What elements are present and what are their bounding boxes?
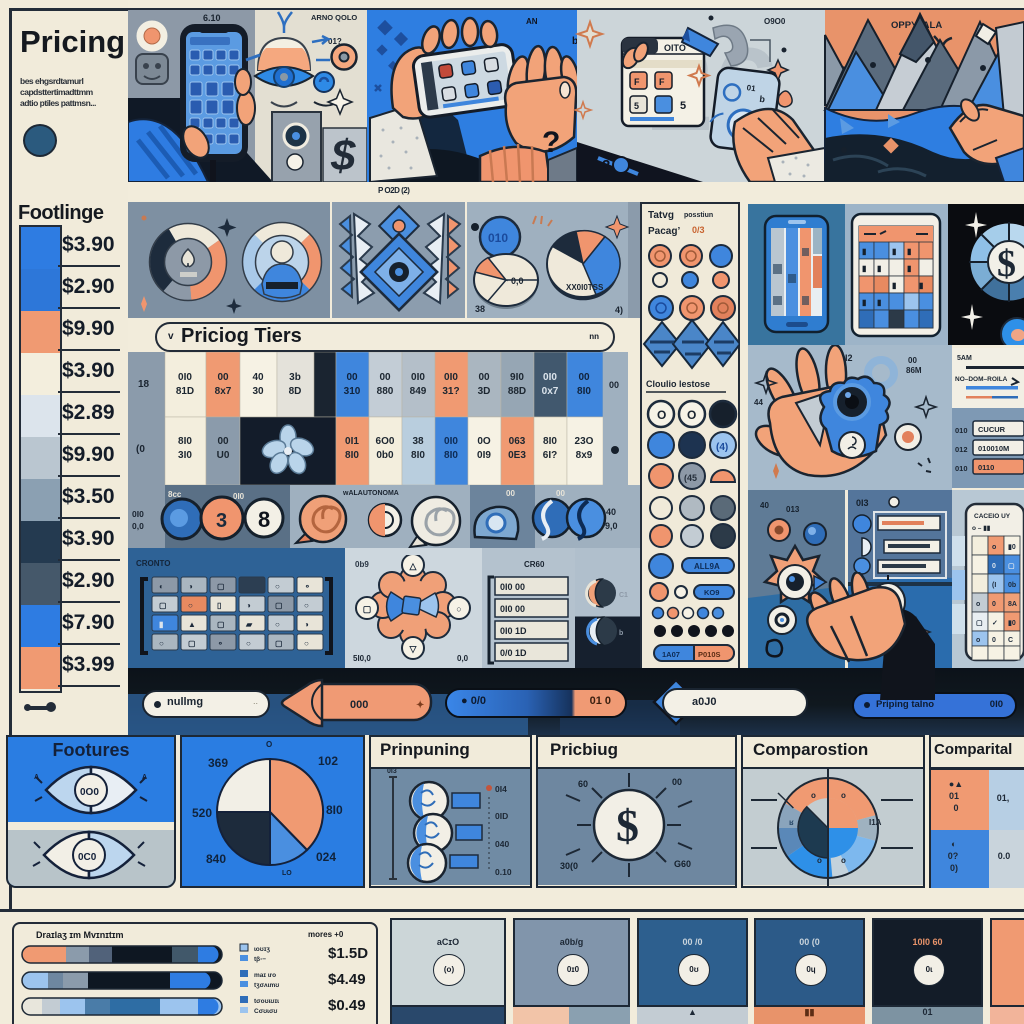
svg-text:▢: ▢ — [976, 620, 983, 627]
svg-text:6I?: 6I? — [543, 450, 557, 461]
svg-text:▯: ▯ — [217, 601, 221, 610]
svg-text:▲: ▲ — [188, 620, 196, 629]
svg-text:0?: 0? — [948, 851, 959, 861]
svg-text:310: 310 — [344, 386, 361, 397]
svg-text:6.10: 6.10 — [203, 13, 221, 23]
svg-text:U0: U0 — [217, 450, 230, 461]
svg-text:$4.49: $4.49 — [328, 971, 366, 988]
svg-text:O: O — [266, 740, 272, 749]
svg-text:◑: ◑ — [188, 582, 193, 591]
svg-text:▢: ▢ — [159, 601, 167, 610]
svg-text:▮: ▮ — [907, 247, 911, 256]
svg-text:▮: ▮ — [862, 298, 866, 307]
svg-text:3D: 3D — [478, 386, 491, 397]
svg-text:0,0: 0,0 — [132, 521, 144, 531]
svg-text:$1.5D: $1.5D — [328, 945, 368, 962]
svg-text:C: C — [1008, 637, 1013, 644]
svg-text:CACEIO UY: CACEIO UY — [974, 513, 1011, 520]
svg-text:840: 840 — [206, 852, 226, 866]
svg-text:0I3: 0I3 — [387, 768, 397, 775]
svg-text:$0.49: $0.49 — [328, 997, 366, 1014]
svg-text:880: 880 — [377, 386, 394, 397]
svg-text:▮0: ▮0 — [1008, 544, 1016, 551]
svg-text:✓: ✓ — [992, 620, 998, 627]
svg-text:6O0: 6O0 — [376, 436, 395, 447]
svg-text:O9O0: O9O0 — [764, 17, 786, 26]
svg-text:00: 00 — [609, 380, 619, 390]
svg-text:8I0: 8I0 — [178, 436, 192, 447]
svg-text:F: F — [634, 77, 640, 87]
svg-text:00: 00 — [556, 489, 565, 498]
svg-text:○: ○ — [275, 620, 280, 629]
svg-text:00: 00 — [578, 372, 590, 383]
svg-text:0I0: 0I0 — [132, 509, 144, 519]
svg-text:18: 18 — [138, 379, 150, 390]
svg-text:0I9: 0I9 — [477, 450, 491, 461]
svg-text:0x7: 0x7 — [542, 386, 559, 397]
svg-text:60: 60 — [578, 779, 588, 789]
svg-text:9I0: 9I0 — [510, 372, 524, 383]
svg-text:AN: AN — [526, 17, 538, 26]
svg-text:8x9: 8x9 — [576, 450, 593, 461]
svg-text:0I0 00: 0I0 00 — [500, 582, 525, 592]
svg-text:LO: LO — [282, 870, 292, 877]
svg-text:010: 010 — [955, 464, 968, 473]
svg-text:⚬: ⚬ — [217, 639, 224, 648]
svg-text:0.0: 0.0 — [998, 851, 1011, 861]
svg-text:00: 00 — [908, 356, 917, 365]
svg-text:0O: 0O — [477, 436, 491, 447]
svg-text:F: F — [659, 77, 665, 87]
svg-text:0I0: 0I0 — [178, 372, 192, 383]
svg-text:tσoʊɩʊɪɩ: tσoʊɩʊɪɩ — [254, 998, 279, 1005]
svg-text:A: A — [142, 774, 147, 781]
svg-text:▢: ▢ — [217, 620, 225, 629]
svg-text:○: ○ — [304, 601, 309, 610]
svg-text:P010S: P010S — [698, 650, 721, 659]
svg-text:01,: 01, — [997, 793, 1010, 803]
svg-text:o: o — [976, 637, 980, 644]
svg-text:Tatvg: Tatvg — [648, 210, 674, 221]
svg-text:O: O — [687, 408, 696, 422]
svg-text:5AM: 5AM — [957, 355, 972, 362]
svg-text:0: 0 — [992, 563, 996, 570]
svg-text:102: 102 — [318, 754, 338, 768]
svg-text:1A07: 1A07 — [662, 650, 680, 659]
svg-text:▮: ▮ — [907, 264, 911, 273]
svg-text:0I1: 0I1 — [345, 436, 359, 447]
svg-text:9,0: 9,0 — [605, 521, 618, 531]
svg-text:0I0: 0I0 — [543, 372, 557, 383]
svg-text:8I0: 8I0 — [411, 450, 425, 461]
svg-text:01: 01 — [746, 83, 756, 93]
svg-text:(0: (0 — [136, 444, 145, 455]
svg-text:NO–DOM–ROILA: NO–DOM–ROILA — [955, 376, 1008, 383]
svg-text:00: 00 — [478, 372, 490, 383]
svg-text:▢: ▢ — [275, 639, 283, 648]
svg-text:▢: ▢ — [275, 601, 283, 610]
svg-text:maɪ ɩro: maɪ ɩro — [254, 972, 276, 979]
svg-text:◑: ◑ — [246, 601, 251, 610]
svg-text:063: 063 — [509, 436, 526, 447]
svg-text:G60: G60 — [674, 859, 691, 869]
svg-text:010: 010 — [955, 426, 968, 435]
svg-text:✦: ✦ — [416, 700, 424, 711]
svg-text:CRONTO: CRONTO — [136, 559, 171, 568]
svg-text:○: ○ — [304, 639, 309, 648]
svg-text:▮0: ▮0 — [1008, 620, 1016, 627]
svg-text:0E3: 0E3 — [508, 450, 526, 461]
svg-text:◐: ◐ — [951, 839, 956, 849]
svg-text:8x7: 8x7 — [215, 386, 232, 397]
svg-text:8A: 8A — [1008, 601, 1017, 608]
svg-text:▮: ▮ — [877, 264, 881, 273]
svg-text:CUCUR: CUCUR — [978, 425, 1006, 434]
svg-text:040: 040 — [495, 839, 509, 849]
svg-text:0: 0 — [992, 637, 996, 644]
svg-text:000: 000 — [350, 699, 368, 711]
svg-text:⚬: ⚬ — [304, 582, 311, 591]
svg-text:013: 013 — [786, 505, 800, 514]
svg-text:▮: ▮ — [862, 264, 866, 273]
svg-text:0O0: 0O0 — [80, 787, 99, 798]
svg-text:8I0: 8I0 — [577, 386, 591, 397]
svg-text:00: 00 — [379, 372, 391, 383]
svg-text:010010M: 010010M — [978, 444, 1009, 453]
svg-text:00: 00 — [672, 777, 682, 787]
svg-text:8I0: 8I0 — [444, 450, 458, 461]
svg-text:0I0: 0I0 — [411, 372, 425, 383]
svg-text:◑: ◑ — [304, 620, 309, 629]
svg-text:o: o — [976, 601, 980, 608]
svg-text:tʒσʌɩmʊ: tʒσʌɩmʊ — [254, 982, 279, 989]
svg-text:○: ○ — [246, 639, 251, 648]
svg-text:o: o — [992, 544, 996, 551]
svg-text:0/0 1D: 0/0 1D — [500, 648, 527, 658]
svg-text:0I0 00: 0I0 00 — [500, 604, 525, 614]
svg-text:0,0: 0,0 — [457, 654, 469, 663]
svg-text:0b0: 0b0 — [376, 450, 394, 461]
svg-text:o: o — [841, 791, 846, 800]
svg-text:520: 520 — [192, 806, 212, 820]
svg-text:▮: ▮ — [159, 620, 163, 629]
svg-text:8I0: 8I0 — [326, 803, 343, 817]
svg-text:8D: 8D — [289, 386, 302, 397]
svg-text:$: $ — [997, 243, 1016, 285]
svg-text:OITO: OITO — [664, 43, 686, 53]
svg-text:23O: 23O — [575, 436, 594, 447]
svg-text:012: 012 — [955, 445, 968, 454]
svg-text:◐: ◐ — [159, 582, 164, 591]
svg-text:00: 00 — [217, 372, 229, 383]
svg-text:00: 00 — [346, 372, 358, 383]
svg-text:△: △ — [409, 561, 418, 571]
svg-text:posstiun: posstiun — [684, 212, 713, 219]
svg-text:44: 44 — [754, 398, 763, 407]
svg-text:0: 0 — [992, 601, 996, 608]
svg-text:849: 849 — [410, 386, 427, 397]
svg-text:Draɪlaʒ ɪm Mvɪnɪtɪm: Draɪlaʒ ɪm Mvɪnɪtɪm — [36, 930, 124, 940]
svg-text:C1: C1 — [619, 592, 628, 599]
svg-text:○: ○ — [188, 601, 193, 610]
svg-text:ʁ: ʁ — [789, 818, 794, 827]
svg-text:369: 369 — [208, 756, 228, 770]
svg-text:Cloulio lestose: Cloulio lestose — [646, 379, 710, 389]
svg-text:01: 01 — [949, 791, 959, 801]
svg-text:31?: 31? — [442, 386, 459, 397]
svg-text:38: 38 — [475, 304, 485, 314]
svg-text:▮: ▮ — [877, 298, 881, 307]
svg-text:▢: ▢ — [217, 582, 225, 591]
svg-text:8I0: 8I0 — [345, 450, 359, 461]
svg-text:(4): (4) — [716, 442, 728, 453]
svg-text:$: $ — [616, 800, 639, 851]
svg-text:Pacag’: Pacag’ — [648, 226, 680, 237]
svg-text:40: 40 — [760, 501, 769, 510]
svg-text:wALAUTONOMA: wALAUTONOMA — [342, 490, 399, 497]
svg-text:0C0: 0C0 — [78, 852, 97, 863]
svg-text:0b: 0b — [1008, 582, 1016, 589]
svg-text:▮: ▮ — [892, 247, 896, 256]
svg-text:00: 00 — [217, 436, 229, 447]
svg-text:ɩoʊɪʒ: ɩoʊɪʒ — [254, 946, 270, 953]
svg-text:XX0I0TSS: XX0I0TSS — [566, 283, 604, 292]
svg-text:ARNO QOLO: ARNO QOLO — [311, 13, 357, 22]
svg-text:2: 2 — [602, 157, 610, 174]
svg-text:▮: ▮ — [862, 247, 866, 256]
svg-text:o: o — [811, 791, 816, 800]
svg-text:00: 00 — [506, 489, 515, 498]
svg-text:○: ○ — [159, 639, 164, 648]
svg-text:ALL9A: ALL9A — [694, 562, 720, 571]
svg-text:O: O — [657, 408, 666, 422]
svg-text:tβ⋅−: tβ⋅− — [254, 956, 266, 963]
svg-text:I1A: I1A — [869, 818, 882, 827]
svg-text:A: A — [34, 774, 39, 781]
svg-text:0b9: 0b9 — [355, 560, 369, 569]
svg-text:38: 38 — [412, 436, 424, 447]
svg-text:0ID: 0ID — [495, 811, 508, 821]
svg-text:0,0: 0,0 — [511, 276, 524, 286]
svg-text:▽: ▽ — [409, 644, 418, 654]
svg-text:▰: ▰ — [245, 620, 253, 629]
svg-text:▢: ▢ — [188, 639, 196, 648]
svg-text:40: 40 — [252, 372, 264, 383]
svg-text:KO9: KO9 — [704, 588, 719, 597]
svg-text:▢: ▢ — [363, 604, 372, 614]
svg-text:○: ○ — [275, 582, 280, 591]
svg-text:●▲: ●▲ — [949, 779, 963, 789]
svg-text:$: $ — [330, 131, 356, 180]
svg-text:88D: 88D — [508, 386, 526, 397]
svg-text:0I3: 0I3 — [856, 498, 869, 508]
svg-text:024: 024 — [316, 850, 336, 864]
svg-text:o: o — [817, 856, 822, 865]
svg-text:(I: (I — [992, 582, 996, 589]
svg-text:o: o — [841, 856, 846, 865]
svg-text:▮: ▮ — [919, 281, 923, 290]
svg-text:0.10: 0.10 — [495, 867, 512, 877]
svg-text:0/3: 0/3 — [692, 225, 705, 235]
svg-text:Cσʊɩσʊ: Cσʊɩσʊ — [254, 1008, 277, 1015]
svg-text:81D: 81D — [176, 386, 194, 397]
svg-text:b: b — [619, 630, 623, 637]
svg-text:o – ▮▮: o – ▮▮ — [972, 525, 991, 532]
svg-text:30(0: 30(0 — [560, 861, 578, 871]
svg-text:3: 3 — [216, 510, 227, 532]
svg-text:0I4: 0I4 — [495, 784, 507, 794]
svg-text:(45: (45 — [684, 473, 697, 483]
svg-text:?: ? — [542, 126, 560, 159]
svg-text:○: ○ — [456, 604, 461, 614]
svg-text:0: 0 — [953, 803, 958, 813]
svg-text:40: 40 — [606, 507, 616, 517]
svg-text:5I0,0: 5I0,0 — [353, 654, 371, 663]
svg-text:8I0: 8I0 — [543, 436, 557, 447]
svg-text:30: 30 — [252, 386, 264, 397]
svg-text:4): 4) — [615, 305, 623, 315]
svg-text:86M: 86M — [906, 366, 922, 375]
svg-text:010: 010 — [488, 231, 508, 245]
svg-text:▮: ▮ — [892, 281, 896, 290]
svg-text:3I0: 3I0 — [178, 450, 192, 461]
svg-text:0I0: 0I0 — [444, 372, 458, 383]
svg-text:0110: 0110 — [978, 463, 994, 472]
svg-text:CR60: CR60 — [524, 560, 545, 569]
svg-text:mores +0: mores +0 — [308, 930, 344, 939]
svg-text:8: 8 — [258, 507, 270, 532]
svg-text:0): 0) — [950, 863, 958, 873]
svg-text:3b: 3b — [289, 372, 301, 383]
svg-text:0I0 1D: 0I0 1D — [500, 626, 527, 636]
svg-text:0I0: 0I0 — [444, 436, 458, 447]
svg-text:5: 5 — [634, 101, 639, 111]
svg-text:5: 5 — [680, 100, 686, 112]
svg-text:▢: ▢ — [1008, 563, 1015, 570]
